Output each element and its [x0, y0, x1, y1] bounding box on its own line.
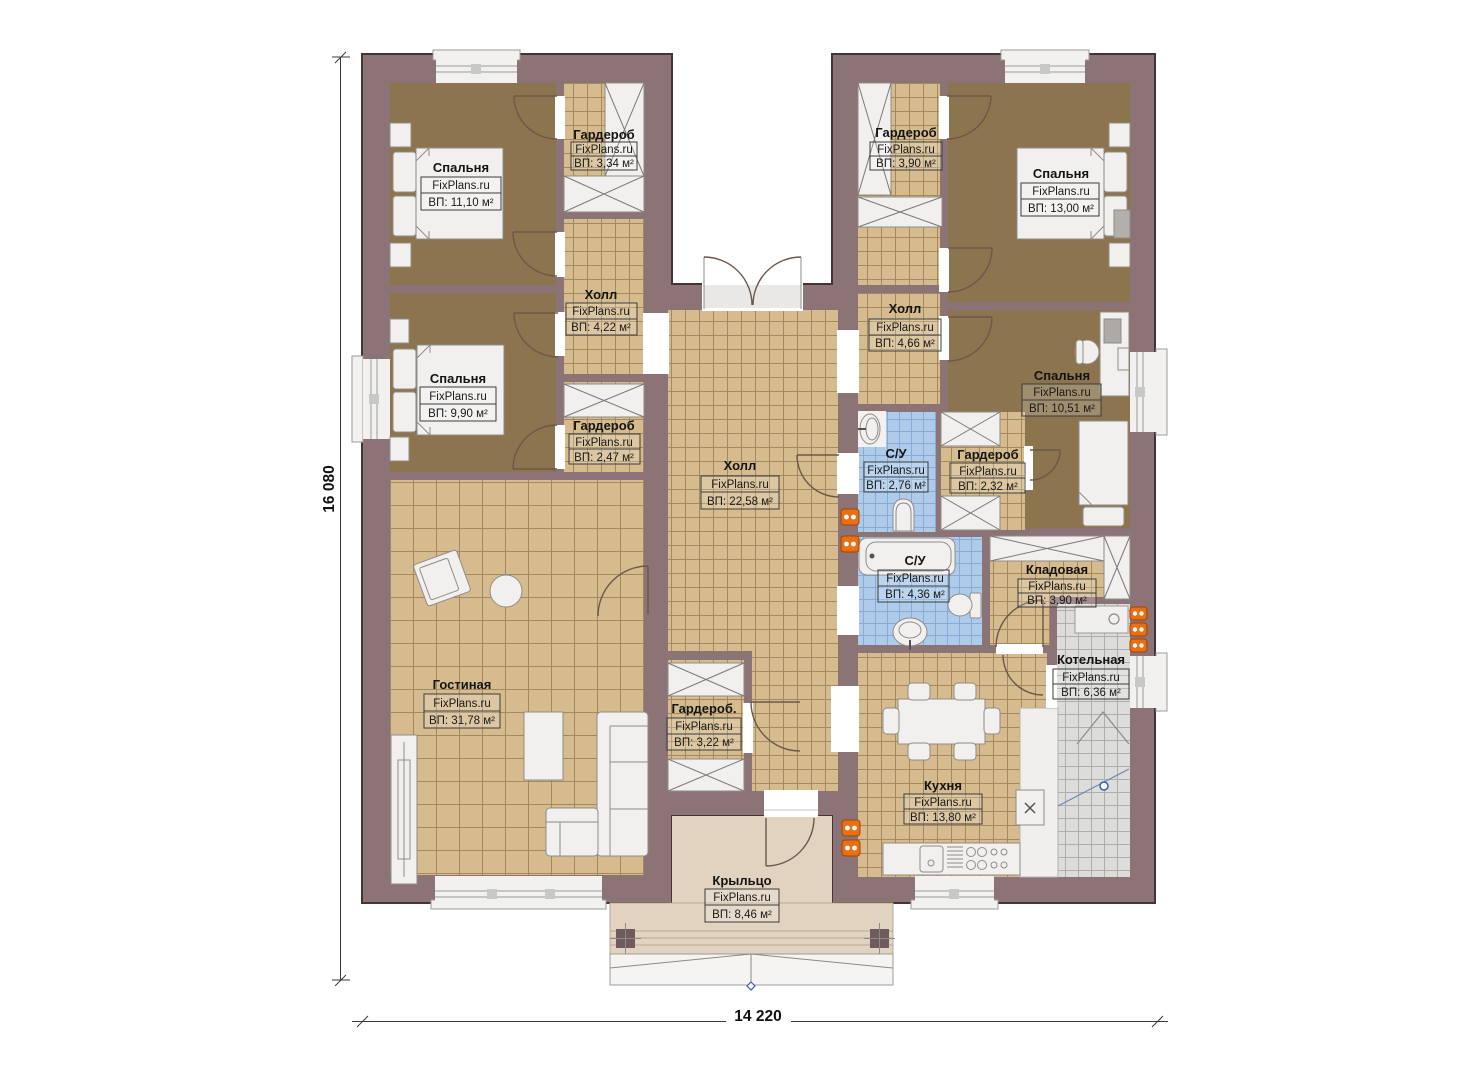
- svg-text:ВП: 11,10 м²: ВП: 11,10 м²: [428, 197, 493, 209]
- svg-text:С/У: С/У: [904, 553, 926, 568]
- svg-text:ВП: 4,66 м²: ВП: 4,66 м²: [875, 338, 935, 350]
- svg-text:FixPlans.ru: FixPlans.ru: [572, 306, 630, 318]
- svg-text:FixPlans.ru: FixPlans.ru: [432, 180, 490, 192]
- svg-text:Спальня: Спальня: [1034, 368, 1090, 383]
- svg-text:FixPlans.ru: FixPlans.ru: [877, 144, 935, 156]
- svg-text:FixPlans.ru: FixPlans.ru: [876, 322, 934, 334]
- svg-text:ВП: 10,51 м²: ВП: 10,51 м²: [1029, 403, 1095, 415]
- svg-text:Котельная: Котельная: [1057, 652, 1125, 667]
- svg-text:Гостиная: Гостиная: [433, 677, 492, 692]
- svg-text:ВП: 8,46 м²: ВП: 8,46 м²: [712, 909, 772, 921]
- svg-text:ВП: 2,32 м²: ВП: 2,32 м²: [958, 481, 1018, 493]
- svg-text:Спальня: Спальня: [433, 160, 489, 175]
- svg-text:FixPlans.ru: FixPlans.ru: [1033, 387, 1091, 399]
- svg-text:Холл: Холл: [724, 458, 757, 473]
- svg-text:Холл: Холл: [889, 301, 922, 316]
- svg-text:ВП: 13,80 м²: ВП: 13,80 м²: [910, 812, 976, 824]
- svg-text:Кладовая: Кладовая: [1026, 562, 1088, 577]
- svg-text:FixPlans.ru: FixPlans.ru: [575, 437, 633, 449]
- svg-text:FixPlans.ru: FixPlans.ru: [1028, 581, 1086, 593]
- svg-text:FixPlans.ru: FixPlans.ru: [867, 465, 925, 477]
- svg-text:Крыльцо: Крыльцо: [712, 873, 771, 888]
- svg-text:FixPlans.ru: FixPlans.ru: [675, 721, 733, 733]
- svg-text:Холл: Холл: [585, 287, 618, 302]
- svg-text:Гардероб: Гардероб: [573, 127, 634, 142]
- svg-text:ВП: 9,90 м²: ВП: 9,90 м²: [428, 408, 488, 420]
- svg-text:ВП: 4,22 м²: ВП: 4,22 м²: [571, 322, 631, 334]
- svg-text:ВП: 3,90 м²: ВП: 3,90 м²: [876, 158, 936, 170]
- svg-text:ВП: 4,36 м²: ВП: 4,36 м²: [885, 589, 945, 601]
- svg-text:FixPlans.ru: FixPlans.ru: [433, 698, 491, 710]
- svg-text:ВП: 3,22 м²: ВП: 3,22 м²: [674, 737, 734, 749]
- svg-text:Гардероб: Гардероб: [573, 418, 634, 433]
- svg-text:FixPlans.ru: FixPlans.ru: [914, 797, 972, 809]
- svg-text:FixPlans.ru: FixPlans.ru: [575, 144, 633, 156]
- svg-text:FixPlans.ru: FixPlans.ru: [1032, 186, 1090, 198]
- svg-text:Кухня: Кухня: [924, 778, 962, 793]
- svg-text:FixPlans.ru: FixPlans.ru: [711, 479, 769, 491]
- svg-text:ВП: 31,78 м²: ВП: 31,78 м²: [429, 715, 495, 727]
- svg-text:Гардероб: Гардероб: [875, 125, 936, 140]
- svg-text:FixPlans.ru: FixPlans.ru: [1062, 672, 1120, 684]
- svg-text:FixPlans.ru: FixPlans.ru: [429, 391, 487, 403]
- svg-text:ВП: 2,76 м²: ВП: 2,76 м²: [866, 480, 926, 492]
- svg-text:ВП: 22,58 м²: ВП: 22,58 м²: [707, 496, 773, 508]
- svg-text:ВП: 6,36 м²: ВП: 6,36 м²: [1061, 687, 1121, 699]
- svg-text:ВП: 3,90 м²: ВП: 3,90 м²: [1027, 595, 1087, 607]
- svg-text:Спальня: Спальня: [1033, 166, 1089, 181]
- svg-text:16 080: 16 080: [321, 465, 338, 512]
- svg-text:FixPlans.ru: FixPlans.ru: [886, 573, 944, 585]
- svg-text:С/У: С/У: [885, 446, 907, 461]
- svg-text:ВП: 13,00 м²: ВП: 13,00 м²: [1028, 203, 1094, 215]
- svg-text:ВП: 3,34 м²: ВП: 3,34 м²: [574, 158, 634, 170]
- svg-text:ВП: 2,47 м²: ВП: 2,47 м²: [574, 452, 634, 464]
- svg-text:14 220: 14 220: [734, 1008, 781, 1025]
- svg-text:Гардероб: Гардероб: [957, 447, 1018, 462]
- svg-text:FixPlans.ru: FixPlans.ru: [713, 892, 771, 904]
- svg-text:Гардероб.: Гардероб.: [671, 701, 736, 716]
- svg-text:Спальня: Спальня: [430, 371, 486, 386]
- svg-text:FixPlans.ru: FixPlans.ru: [959, 466, 1017, 478]
